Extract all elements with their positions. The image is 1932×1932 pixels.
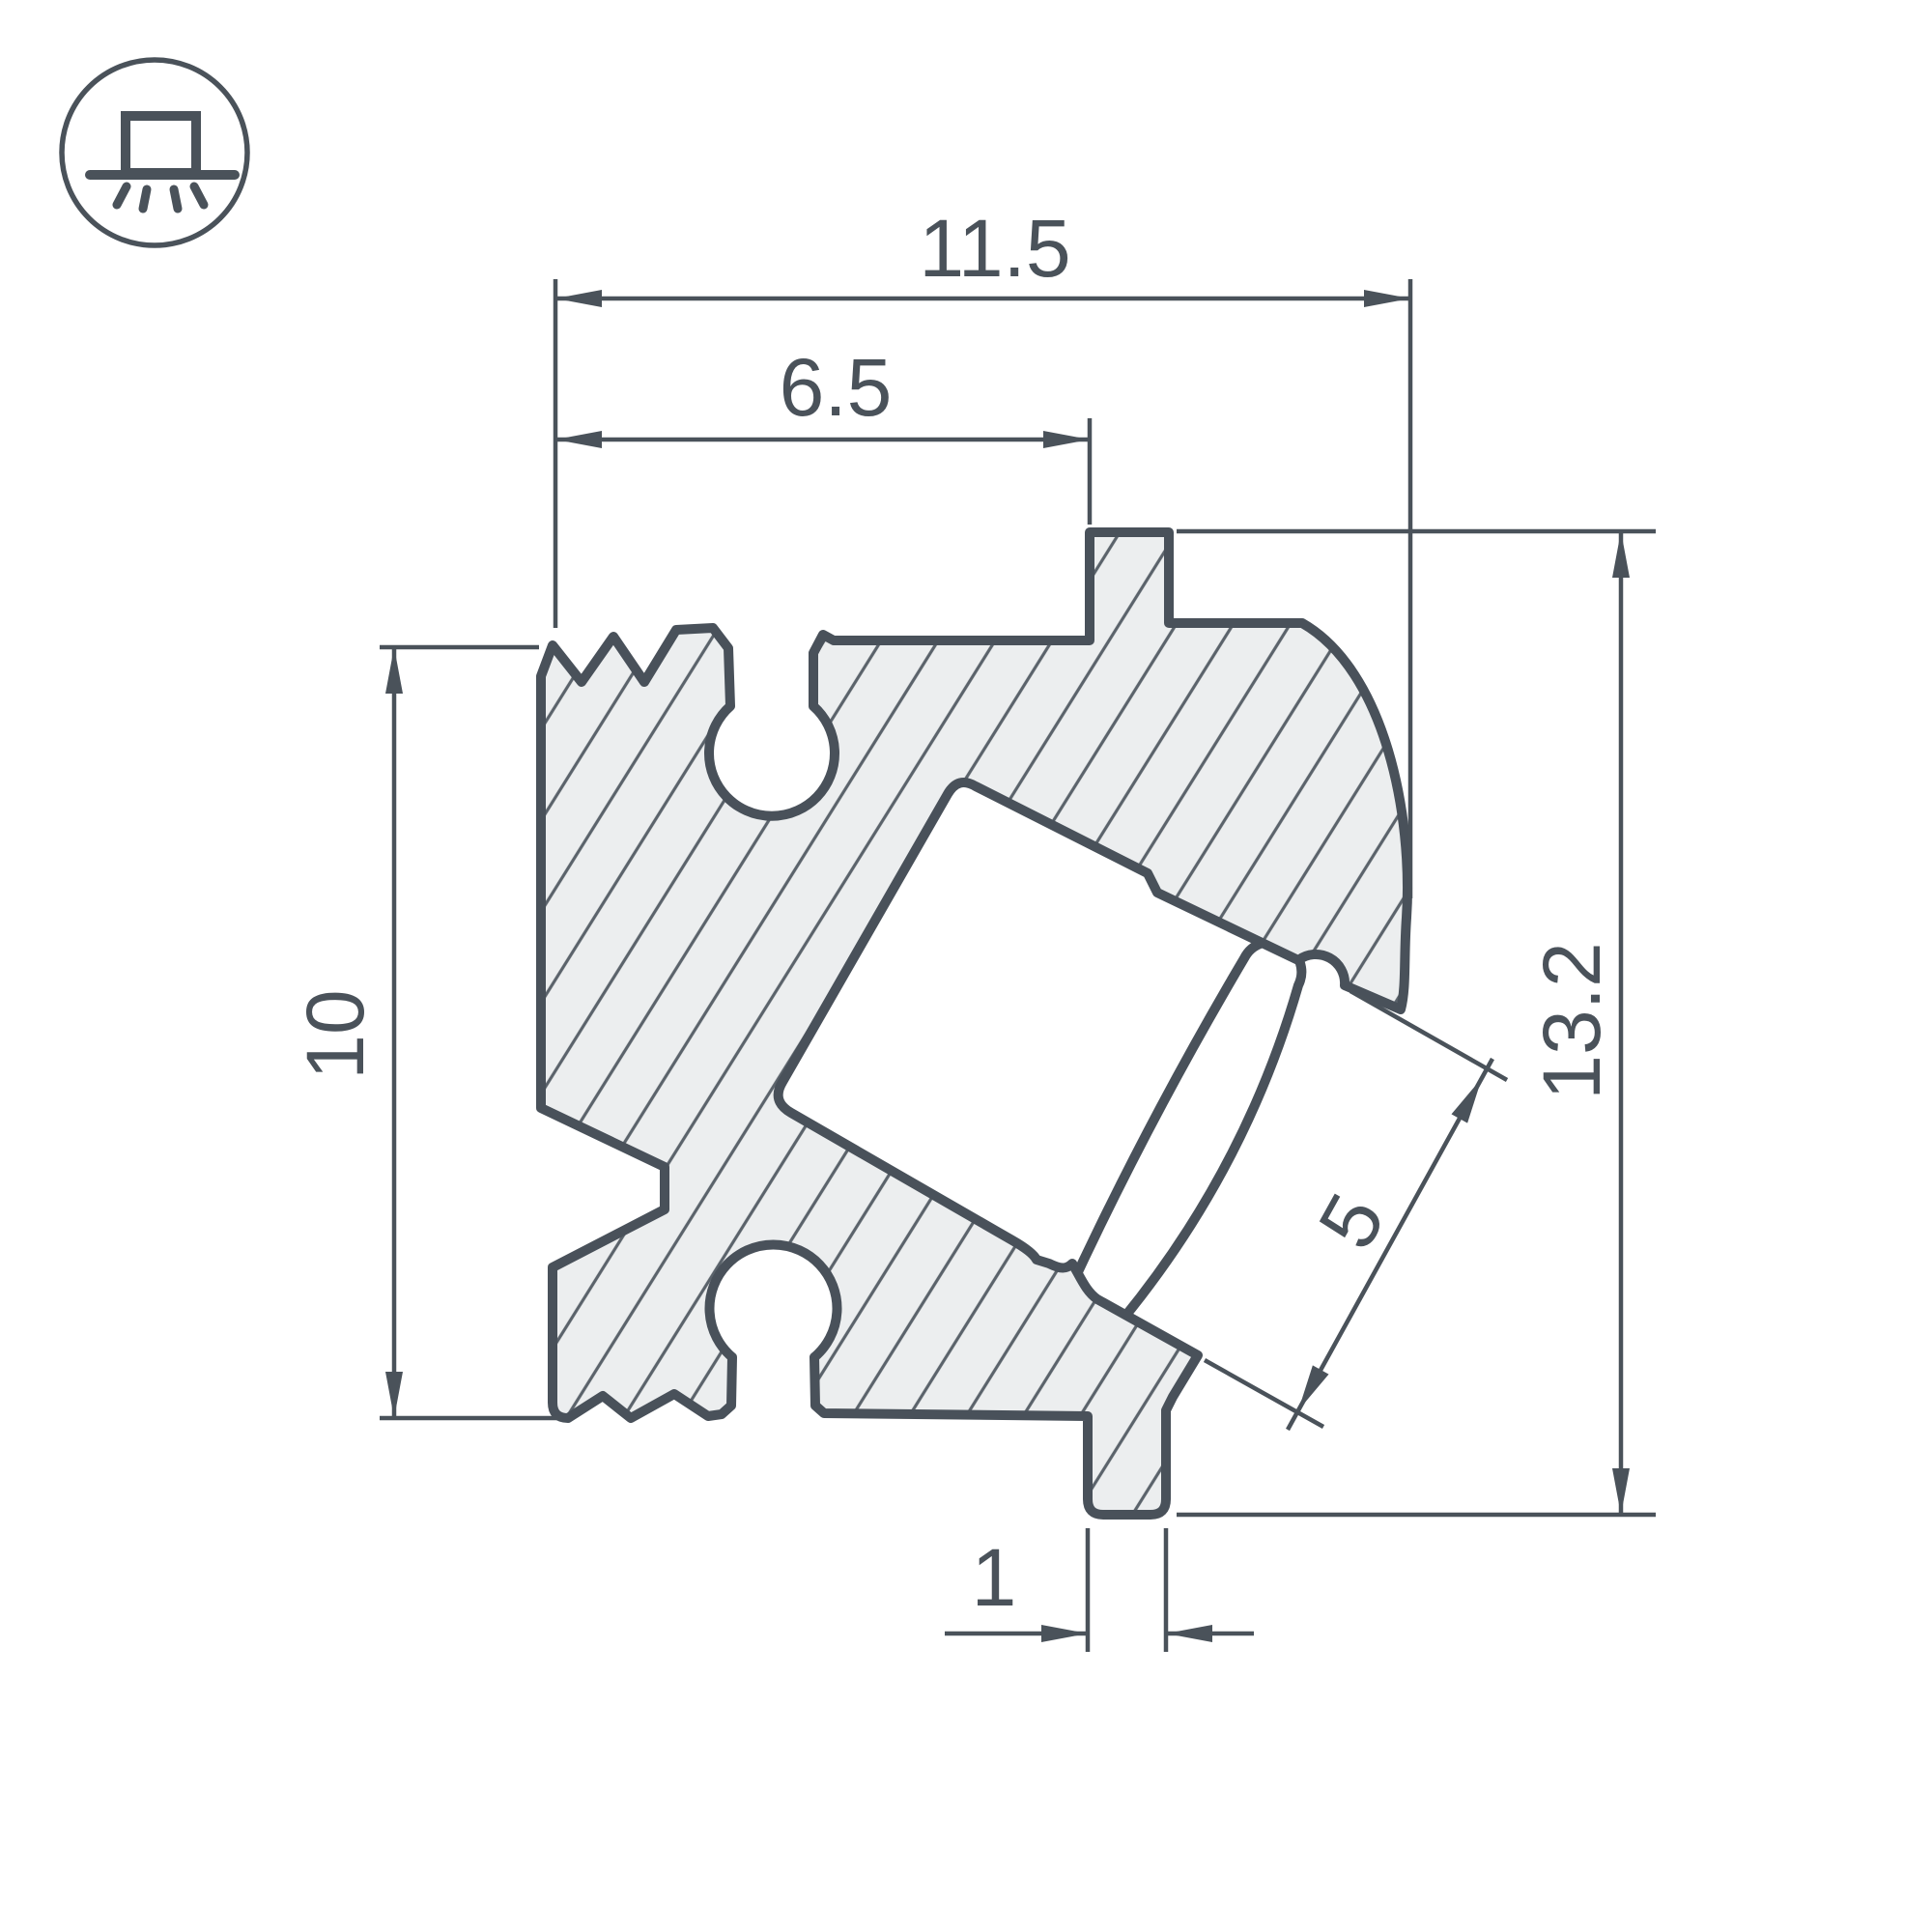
icon-light-rays <box>117 186 204 209</box>
arrowhead-right <box>1364 290 1410 307</box>
arrowhead-top <box>1612 531 1630 578</box>
arrowhead-bottom <box>1612 1468 1630 1515</box>
dimension-label-overall-width: 11.5 <box>919 203 1070 294</box>
arrowhead-right <box>1166 1625 1212 1642</box>
dimension-label-slot-width: 5 <box>1301 1179 1403 1263</box>
arrowhead-bottom <box>385 1372 403 1418</box>
dimension-inner-width: 6.5 <box>555 342 1090 525</box>
arrowhead-top <box>385 647 403 694</box>
icon-profile-box <box>126 116 196 173</box>
dimension-label-overall-height: 13.2 <box>1526 942 1617 1100</box>
arrowhead-left <box>555 290 602 307</box>
dimension-left-height: 10 <box>290 647 562 1418</box>
dimension-foot-width: 1 <box>945 1528 1254 1652</box>
arrowhead-lower <box>1298 1365 1329 1410</box>
arrowhead-left <box>1041 1625 1088 1642</box>
arrowhead-left <box>555 431 602 448</box>
arrowhead-upper <box>1452 1078 1483 1123</box>
profile-technical-drawing: 11.5 6.5 10 13.2 5 <box>0 0 1932 1932</box>
arrowhead-right <box>1043 431 1090 448</box>
dimension-label-foot-width: 1 <box>972 1532 1017 1623</box>
dimension-label-inner-width: 6.5 <box>780 342 893 433</box>
diffuser-lens <box>1065 942 1302 1337</box>
drawing-canvas: 11.5 6.5 10 13.2 5 <box>0 0 1932 1932</box>
mount-type-icon <box>62 60 247 245</box>
dimension-label-left-height: 10 <box>290 989 381 1079</box>
icon-circle <box>62 60 247 245</box>
extension-line-upper <box>1350 991 1507 1080</box>
